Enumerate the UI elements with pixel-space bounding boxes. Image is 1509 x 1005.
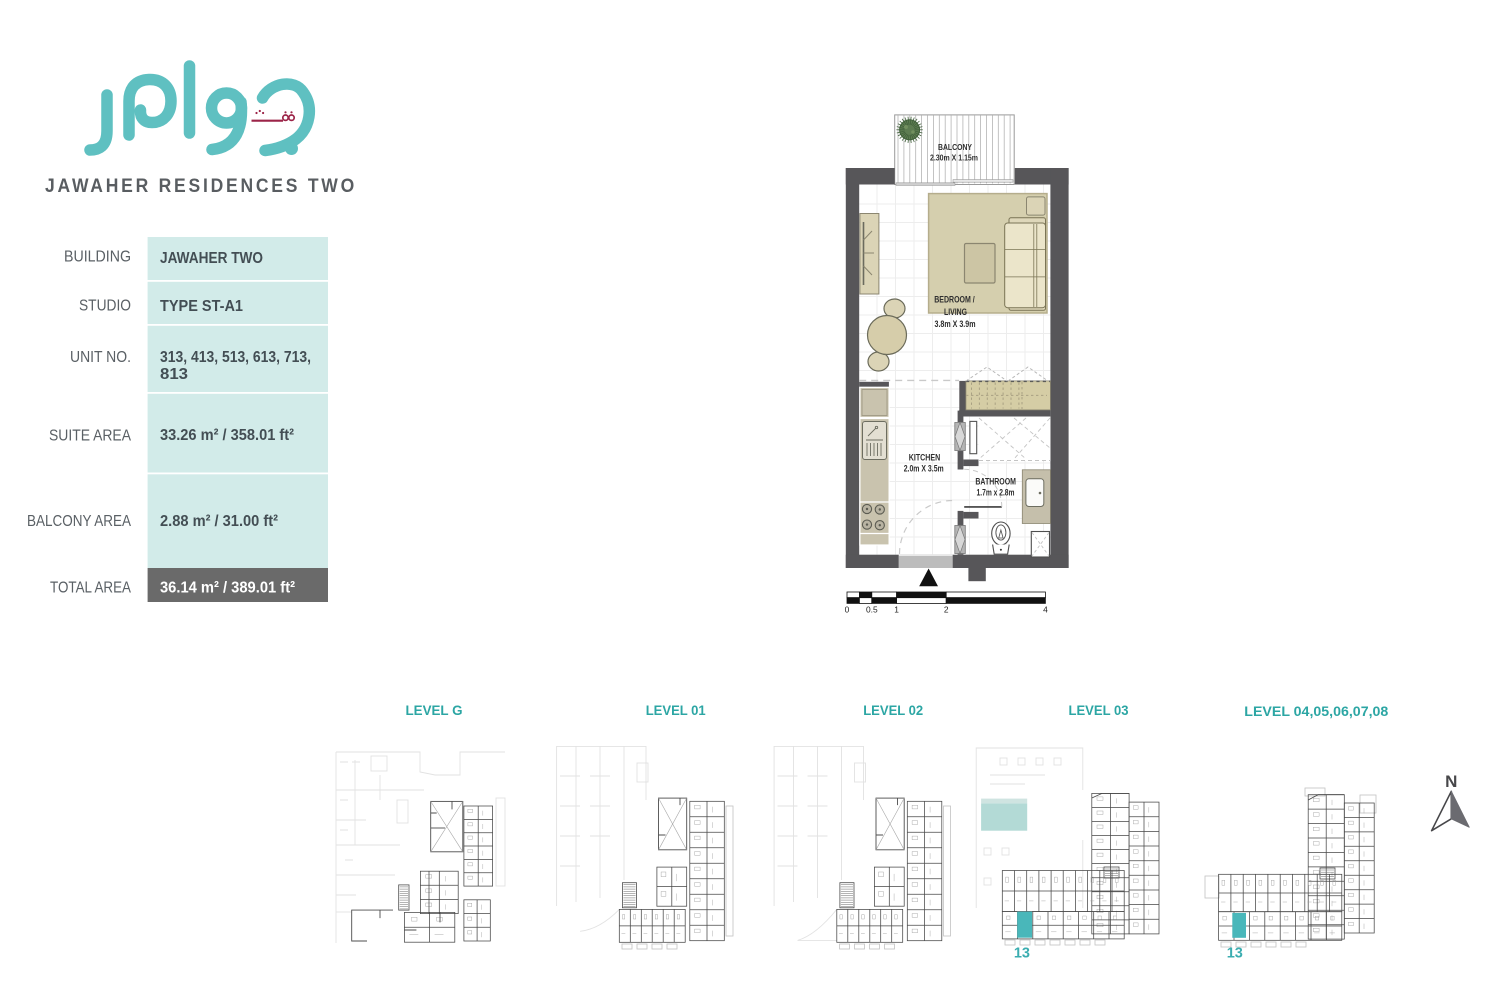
svg-text:STUDIO: STUDIO <box>79 298 131 315</box>
svg-text:0: 0 <box>845 605 850 615</box>
svg-text:TYPE ST-A1: TYPE ST-A1 <box>160 298 243 315</box>
svg-text:2.30m X 1.15m: 2.30m X 1.15m <box>930 153 978 163</box>
svg-text:1: 1 <box>894 605 899 615</box>
svg-text:JAWAHER RESIDENCES TWO: JAWAHER RESIDENCES TWO <box>45 176 357 197</box>
svg-text:LEVEL 02: LEVEL 02 <box>863 702 923 718</box>
svg-text:LEVEL 04,05,06,07,08: LEVEL 04,05,06,07,08 <box>1244 703 1388 719</box>
svg-text:2.88 m² / 31.00 ft²: 2.88 m² / 31.00 ft² <box>160 513 278 530</box>
svg-text:0.5: 0.5 <box>866 605 878 615</box>
svg-text:4: 4 <box>1043 605 1048 615</box>
svg-text:313, 413, 513, 613, 713,: 313, 413, 513, 613, 713, <box>160 349 311 366</box>
svg-text:UNIT NO.: UNIT NO. <box>70 349 131 366</box>
svg-text:2.0m X 3.5m: 2.0m X 3.5m <box>904 464 944 475</box>
svg-text:BATHROOM: BATHROOM <box>975 477 1016 488</box>
svg-text:13: 13 <box>1227 946 1243 962</box>
svg-text:SUITE AREA: SUITE AREA <box>49 428 132 445</box>
svg-text:36.14 m² / 389.01 ft²: 36.14 m² / 389.01 ft² <box>160 580 295 597</box>
svg-text:JAWAHER TWO: JAWAHER TWO <box>160 250 263 267</box>
svg-text:N: N <box>1445 772 1457 791</box>
svg-text:LEVEL 01: LEVEL 01 <box>646 702 706 718</box>
svg-text:LEVEL G: LEVEL G <box>406 702 463 718</box>
svg-text:BEDROOM /: BEDROOM / <box>934 295 975 306</box>
svg-text:1.7m x 2.8m: 1.7m x 2.8m <box>977 488 1015 499</box>
svg-text:3.8m X 3.9m: 3.8m X 3.9m <box>935 319 976 330</box>
svg-text:813: 813 <box>160 366 188 383</box>
svg-text:KITCHEN: KITCHEN <box>909 453 941 464</box>
svg-text:BALCONY AREA: BALCONY AREA <box>27 513 132 530</box>
svg-text:BUILDING: BUILDING <box>64 249 131 266</box>
svg-text:LEVEL 03: LEVEL 03 <box>1069 702 1129 718</box>
svg-text:TOTAL AREA: TOTAL AREA <box>50 580 132 597</box>
svg-text:13: 13 <box>1014 946 1030 962</box>
svg-text:LIVING: LIVING <box>944 307 967 318</box>
svg-text:33.26 m² / 358.01 ft²: 33.26 m² / 358.01 ft² <box>160 427 294 444</box>
svg-text:BALCONY: BALCONY <box>938 142 972 152</box>
svg-text:2: 2 <box>944 605 949 615</box>
